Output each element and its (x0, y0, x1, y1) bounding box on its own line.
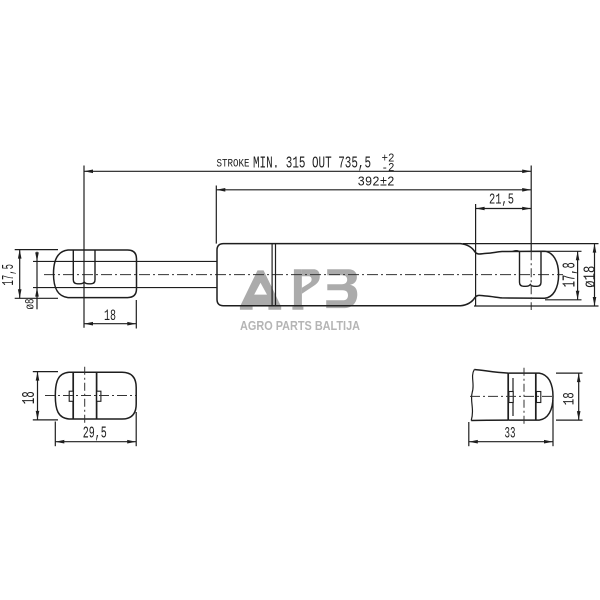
svg-text:18: 18 (104, 307, 116, 325)
svg-text:ø8: ø8 (23, 299, 38, 310)
svg-text:21,5: 21,5 (489, 192, 514, 208)
svg-text:33: 33 (505, 425, 516, 443)
svg-text:-2: -2 (382, 161, 395, 175)
svg-text:18: 18 (20, 391, 40, 404)
svg-text:AGRO PARTS BALTIJA: AGRO PARTS BALTIJA (240, 318, 361, 333)
svg-text:29,5: 29,5 (83, 424, 107, 443)
svg-text:17,8: 17,8 (560, 262, 580, 287)
svg-text:17,5: 17,5 (0, 264, 19, 286)
svg-text:392±2: 392±2 (358, 174, 395, 190)
svg-text:STROKE: STROKE (217, 159, 250, 171)
svg-text:MIN. 315 OUT 735,5: MIN. 315 OUT 735,5 (253, 155, 371, 174)
svg-text:ø18: ø18 (581, 266, 600, 288)
svg-text:18: 18 (561, 392, 579, 405)
